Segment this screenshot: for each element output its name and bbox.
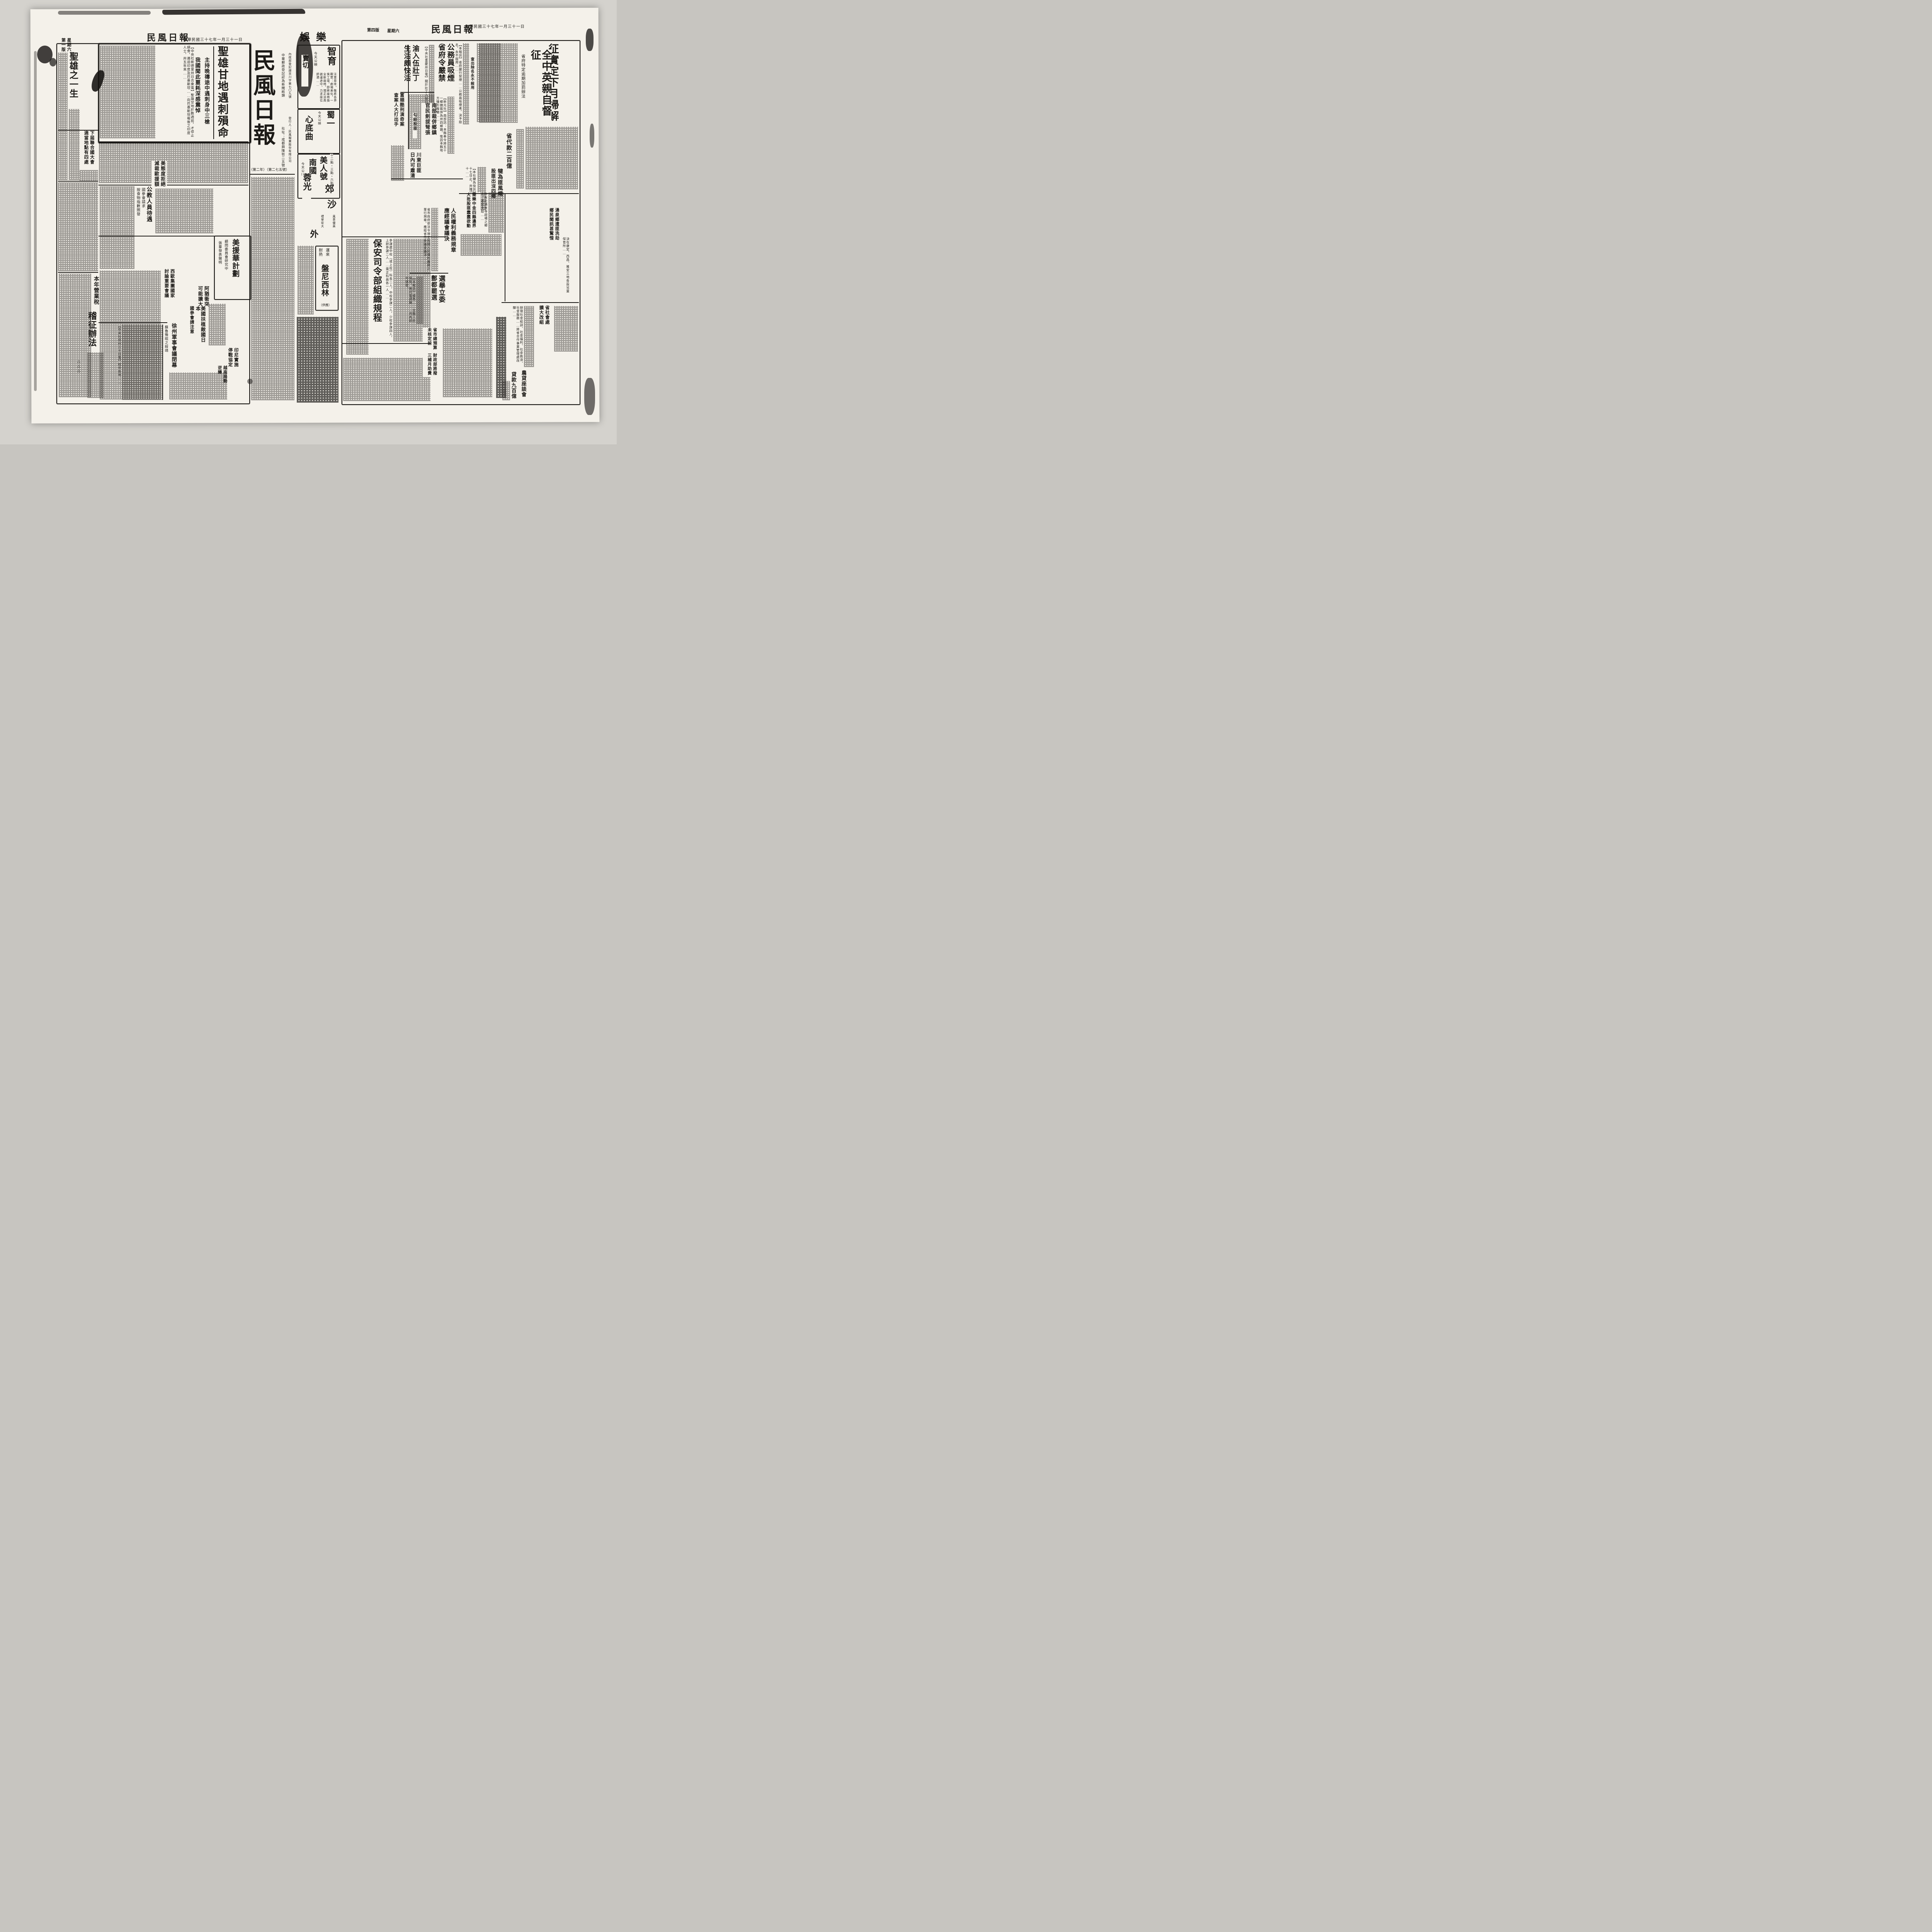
subhead-line: 按食物指數照發 — [136, 188, 139, 231]
article-budget-headline-top: 省市總預算 未核定前 — [423, 328, 441, 352]
body-text-texture — [524, 306, 534, 367]
headline-line: 西歐集團國家 — [170, 269, 175, 300]
headline-line: 川東巨匪 — [416, 152, 421, 179]
column-rule — [505, 193, 505, 301]
section-rule — [99, 185, 248, 185]
body-text-texture — [477, 43, 501, 122]
headline-line: 美國扶植敵國日本 — [195, 306, 205, 343]
article-baoan-body: 參謀處中校（或上校）科長二人，中校參謀二人，少校參謀四人，上尉參謀二人……需正科… — [386, 239, 393, 342]
headline-line: 未核定前 — [427, 328, 431, 352]
scan-artifact — [49, 58, 56, 66]
body-text-texture — [251, 177, 294, 400]
article-social-headline: 省社會處 擴大改組 — [536, 305, 553, 335]
body-text-texture — [554, 306, 578, 352]
article-rights-headline: 人民權利義務規章 應經議會議決 — [440, 208, 459, 259]
scan-artifact — [584, 378, 595, 415]
article-nanbu-kicker: 勾結股匪 — [413, 113, 417, 138]
body-text-texture — [80, 170, 98, 182]
body-text-texture — [100, 186, 134, 269]
article-lead-headline2: 全中英親自督征 — [529, 49, 551, 128]
body-text-texture — [431, 208, 438, 271]
headline-line: 三補月助費 — [427, 353, 431, 377]
article-budget-headline-bottom: 財政部將撥 三補月助費 — [423, 353, 441, 377]
article-smoke-kicker: 查出除名永不敍用 — [470, 57, 474, 111]
body-text-texture — [393, 239, 430, 342]
article-un-headline: 下屆聯合國大會 適當地點有四處 — [80, 131, 98, 168]
article-farmloan-headline1: 農貸座談會 — [521, 370, 526, 400]
article-jianle-body: 昨有赴湧泉寺趕場之鄉人，遭受洗劫…… — [482, 192, 488, 233]
article-fushun-headline: 富順酷刑演奇案 查案人大打出手 — [391, 93, 406, 143]
column-rule — [408, 45, 409, 149]
scan-artifact — [590, 124, 594, 148]
section-rule — [342, 343, 431, 344]
section-rule — [99, 322, 167, 323]
headline-line: 下屆聯合國大會 — [90, 131, 94, 168]
article-indonesia-headline: 印尼實施 停戰協定 — [226, 348, 240, 372]
headline-line: 財政部將撥 — [433, 353, 437, 377]
article-penicillin-headline: 盤尼西林 — [320, 264, 328, 303]
cinema-rongguang-name: 蓉光 — [302, 173, 311, 209]
cinema-zhiyu-name: 智育 — [325, 46, 335, 70]
left-dateline: 中華民國三十七年一月三十一日 — [183, 36, 243, 42]
cinema-rongguang-blurb2: 禮堂宏大 — [321, 215, 324, 236]
ad-glyph-sha: 沙 — [325, 199, 335, 214]
headline-line: 減裁歐援額 — [153, 161, 158, 187]
body-text-texture — [461, 234, 502, 256]
body-text-texture — [447, 97, 454, 154]
body-text-texture — [488, 192, 504, 233]
cinema-zhiyu-note: 今天公映 — [314, 52, 317, 75]
headline-line: 簡樂中金四縣邊界 — [472, 192, 476, 232]
headline-line: 南部裁併鄉鎮 — [431, 103, 437, 149]
body-text-texture — [502, 381, 510, 400]
headline-line: 生活頗快活 — [403, 45, 410, 91]
headline-line: 國參會請注意 — [189, 306, 194, 343]
section-rule — [58, 130, 98, 131]
column-rule — [162, 325, 163, 400]
article-baoan-headline: 保安司令部組織規程 — [372, 239, 381, 340]
right-weekday-label: 星期六 — [387, 28, 400, 34]
body-text-texture — [209, 304, 226, 345]
headline-line: 大批股匪蠢蠢欲動 — [466, 192, 470, 232]
scan-artifact — [247, 379, 253, 384]
article-penicillin-kicker: 運來 — [325, 248, 329, 263]
headline-line: 公務員吸煙 — [446, 43, 454, 92]
headline-line: 渝入伍壯丁 — [412, 45, 419, 91]
article-childcare-body: 決在康定、西昌、雅安三地各設兒童保育所…… — [563, 237, 570, 293]
article-pay-headline: 公教人員待遇 — [146, 186, 151, 226]
headline-line: 美態度拒絕 — [160, 161, 165, 187]
film-jiaowai-char-a: 郊 — [323, 184, 333, 197]
article-aid-subhead2: 張羣發表聲明 — [218, 241, 222, 284]
article-westbloc-headline: 西歐集團國家 討論重要會議 — [162, 269, 177, 300]
body-text-texture — [346, 239, 369, 355]
section-rule — [502, 302, 579, 303]
section-rule — [342, 236, 447, 237]
article-gandhi-subhead1: 主持晚禱途中遇刺身中三槍 — [204, 57, 209, 138]
section-rule — [410, 273, 448, 274]
license-line: 內政部登記證京川字第七〇九號 — [288, 53, 291, 114]
article-penicillin-tag: （供應） — [319, 303, 332, 307]
headline-line: 省市總預算 — [433, 328, 437, 352]
headline-line: 停戰協定 — [228, 348, 232, 372]
article-yongquan-headline: 湧泉鄉遭匪洗劫 鄉民聞訊甚驚惶 — [546, 208, 562, 245]
triangle-marks: △△△ — [77, 359, 81, 385]
body-text-texture — [58, 182, 98, 271]
headline-line: 官民劍拔弩張 — [425, 103, 430, 149]
article-xuzhou-headline: 徐州軍事會議閉幕 — [171, 323, 176, 372]
postal-registration-line: 中華郵政登記認為新聞紙類 — [281, 53, 285, 124]
article-lead-subhead: 省府特定逾期加罰辦法 — [521, 54, 525, 118]
cinema-rongguang-blurb1: 風景優美 — [332, 215, 335, 236]
headline-line: 選舉立委 — [438, 275, 445, 317]
article-us-refusal-headline: 美態度拒絕 減裁歐援額 — [151, 161, 167, 187]
section-rule — [58, 272, 98, 273]
headline-line: 人民權利義務規章 — [450, 208, 456, 259]
scan-artifact — [586, 29, 594, 51]
article-pay-subheads: 國參會請求 按食物指數照發 — [135, 188, 145, 231]
section-rule — [99, 236, 214, 236]
article-provloan-headline: 省代款二百億 — [505, 133, 511, 172]
article-gandhi-body: 【中央社新德里卅日合衆電】聖雄甘地於數週前，才停止絕食，遏迫印度及巴基斯坦……向… — [156, 46, 194, 138]
right-dateline: 中華民國三十七年一月三十一日 — [465, 23, 525, 29]
cinema-shuyi-note: 今天公映 — [318, 111, 321, 131]
gutter-ad-texture — [297, 317, 338, 403]
article-tax-kicker: 本年營業稅 — [93, 276, 99, 311]
body-text-texture — [463, 43, 469, 124]
scan-artifact — [162, 9, 305, 15]
body-text-texture — [100, 270, 161, 400]
cinema-zhiyu-notice: 注意是幸。敬希各界觀眾：劇場美化，一俟工竣，即將座椅換全新座椅，現正派員啟運途中… — [300, 73, 337, 105]
scan-artifact — [58, 11, 151, 15]
article-aid-headline: 美援華計劃 — [231, 239, 239, 290]
body-text-texture — [99, 143, 248, 183]
headline-line: 湧泉鄉遭匪洗劫 — [554, 208, 559, 245]
headline-line: 適當地點有四處 — [83, 131, 88, 168]
body-text-texture — [516, 129, 524, 189]
section-rule — [99, 141, 248, 142]
headline-line: 討論重要會議 — [164, 269, 168, 300]
headline-line: 鄉民聞訊甚驚惶 — [549, 208, 553, 245]
headline-line: 印尼實施 — [234, 348, 238, 372]
body-text-texture — [443, 328, 492, 397]
headline-line: 應經議會議決 — [443, 208, 449, 259]
film-xindiqu-title: 心底曲 — [304, 115, 313, 147]
section-rule — [249, 174, 295, 175]
article-yu-headline: 渝入伍壯丁 生活頗快活 — [402, 45, 420, 91]
right-edition-label: 第四版 — [367, 27, 379, 33]
body-text-texture — [58, 53, 68, 180]
newspaper-scan: 星期六 第一版 民風日報 中華民國三十七年一月三十一日 聖雄之一生 下屆聯合國大… — [0, 0, 617, 444]
article-japan-headline: 美國扶植敵國日本 國參會請注意 — [188, 306, 206, 343]
body-text-texture — [391, 145, 404, 181]
subhead-line: 國參會請求 — [141, 188, 145, 231]
headline-line: 富順酷刑演奇案 — [400, 93, 404, 143]
editorial-title: 聖雄之一生 — [68, 52, 77, 106]
article-social-body: 辦理社會組訓、社會福利、社會救濟、社會服務……將省合作事業管理處改隸…… — [518, 306, 523, 367]
headline-line: 省府令嚴禁 — [437, 43, 445, 92]
article-gandhi-subhead2: 我國聞此噩耗深感震悼 — [194, 57, 200, 136]
article-chuandong-headline: 川東巨匪 日內可肅清 — [406, 152, 424, 179]
article-nanbu-body: 【新元社】南部訊：本縣奉令將五十一鄉鎮裁併為卅四鄉鎮，惟因本縣地方情形複雜…… — [441, 97, 447, 155]
headline-line: 鄷都罷選 — [430, 275, 436, 317]
cinema-shuyi-name: 蜀一 — [326, 111, 335, 131]
issue-number-line: （第二年）（第二七五號） — [249, 167, 289, 172]
headline-line: 擴大改組 — [539, 305, 543, 335]
article-gandhi-headline: 聖雄甘地遇刺殞命 — [216, 46, 228, 141]
section-rule — [459, 193, 579, 194]
body-text-texture — [59, 274, 91, 397]
body-text-texture — [155, 189, 213, 233]
headline-line: 查案人大打出手 — [393, 93, 398, 143]
section-rule — [58, 181, 98, 182]
article-farmloan-headline2: 貸款九百億 — [511, 372, 516, 400]
article-smoke-body: 【本報訊】省府嚴行禁煙……公務員吸煙者，決予除名，永不敍用…… — [457, 43, 462, 124]
article-penicillin-note: 耐熱 — [318, 248, 322, 263]
body-text-texture — [343, 358, 430, 401]
article-smoke-headline: 公務員吸煙 省府令嚴禁 — [436, 43, 455, 92]
column-rule — [213, 46, 214, 139]
cinema-nanguo-showtimes: 十二點・三點・六點 — [330, 154, 333, 185]
scan-artifact — [34, 51, 37, 391]
body-text-texture — [69, 109, 80, 180]
article-xuzhou-subhead: 蘇魯豫晥之綏靖 — [164, 325, 168, 364]
body-text-texture — [100, 46, 155, 138]
article-aid-subhead1: 顧問委員會研究中 — [224, 240, 228, 291]
headline-line: 日內可肅清 — [409, 152, 414, 179]
masthead-calligraphy: 民風日報 — [250, 49, 274, 168]
article-jianle-headline: 簡樂中金四縣邊界 大批股匪蠢蠢欲動 — [461, 192, 481, 232]
film-jiaowai-char-b: 外 — [309, 230, 318, 242]
body-text-texture — [169, 372, 227, 400]
body-text-texture — [298, 246, 314, 315]
headline-line: 省社會處 — [545, 305, 549, 335]
section-rule — [391, 179, 463, 179]
body-text-texture — [526, 127, 578, 189]
